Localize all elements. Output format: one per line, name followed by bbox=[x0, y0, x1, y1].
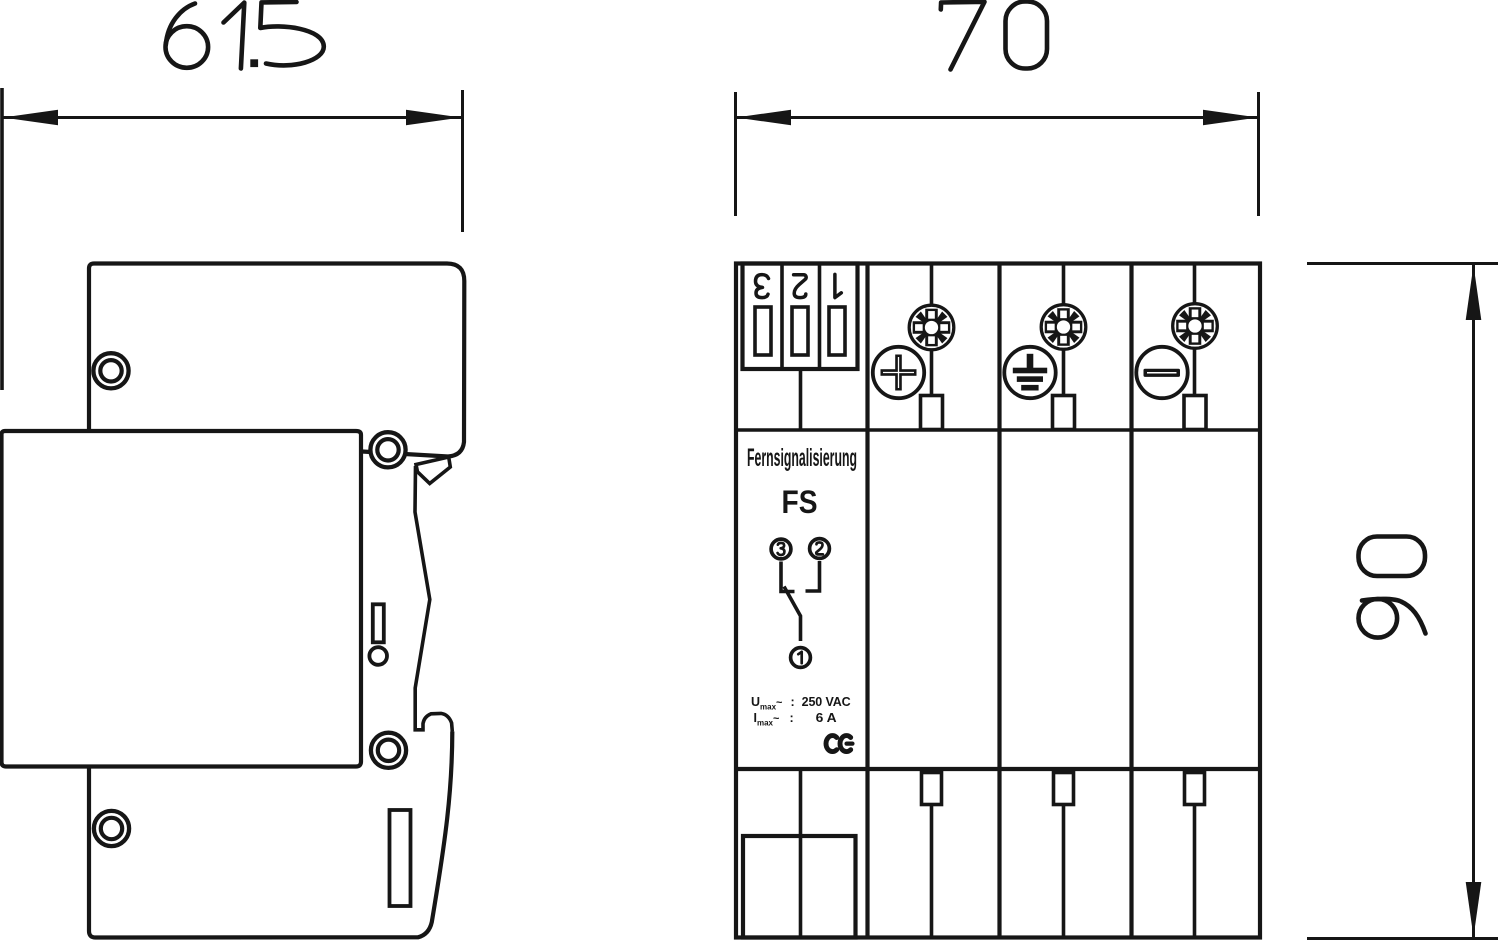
svg-text:Fernsignalisierung: Fernsignalisierung bbox=[747, 444, 857, 472]
svg-text:FS: FS bbox=[782, 484, 818, 520]
